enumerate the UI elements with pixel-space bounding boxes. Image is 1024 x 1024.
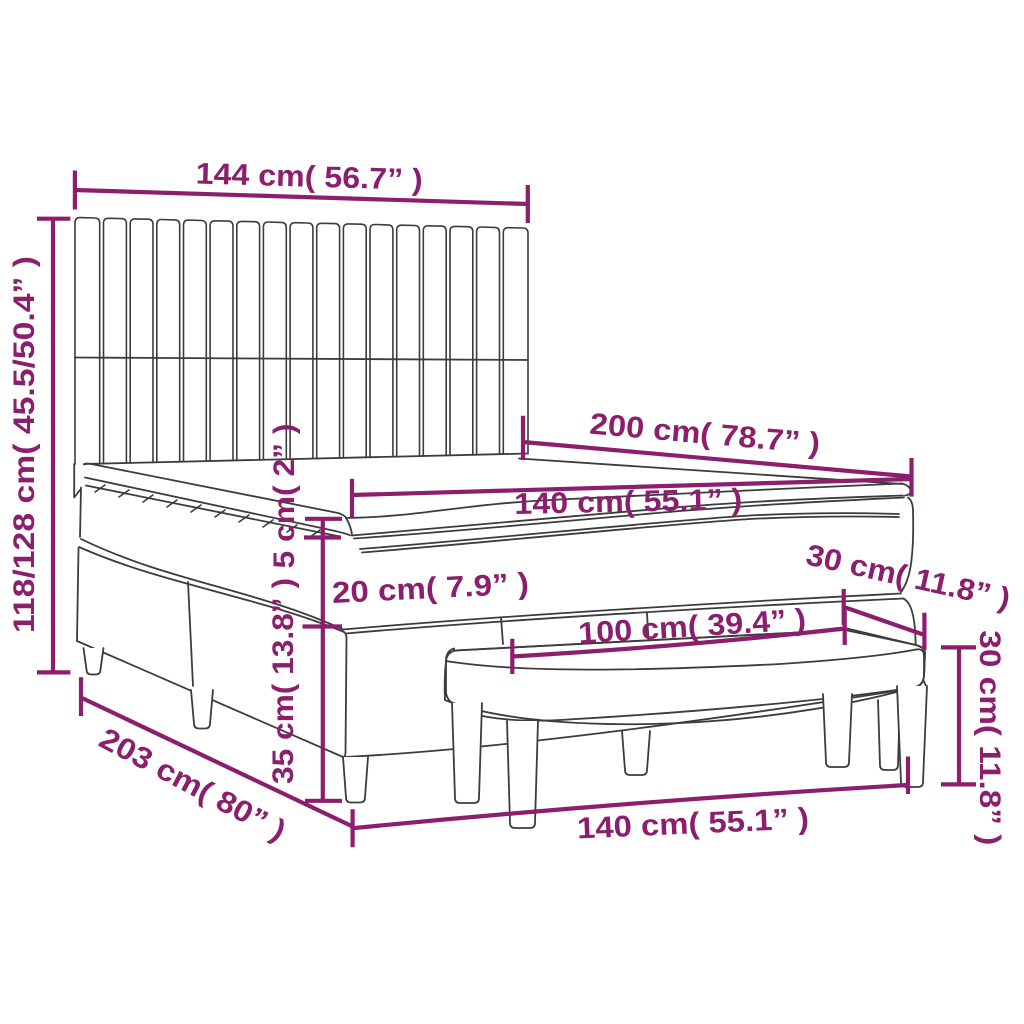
svg-text:35 cm( 13.8” ): 35 cm( 13.8” ) bbox=[267, 578, 300, 784]
svg-text:140 cm( 55.1” ): 140 cm( 55.1” ) bbox=[514, 483, 743, 521]
svg-text:118/128 cm( 45.5/50.4” ): 118/128 cm( 45.5/50.4” ) bbox=[8, 256, 41, 633]
svg-text:5 cm( 2” ): 5 cm( 2” ) bbox=[268, 424, 301, 569]
svg-text:144 cm( 56.7” ): 144 cm( 56.7” ) bbox=[195, 158, 423, 197]
svg-text:30 cm( 11.8” ): 30 cm( 11.8” ) bbox=[973, 630, 1006, 845]
